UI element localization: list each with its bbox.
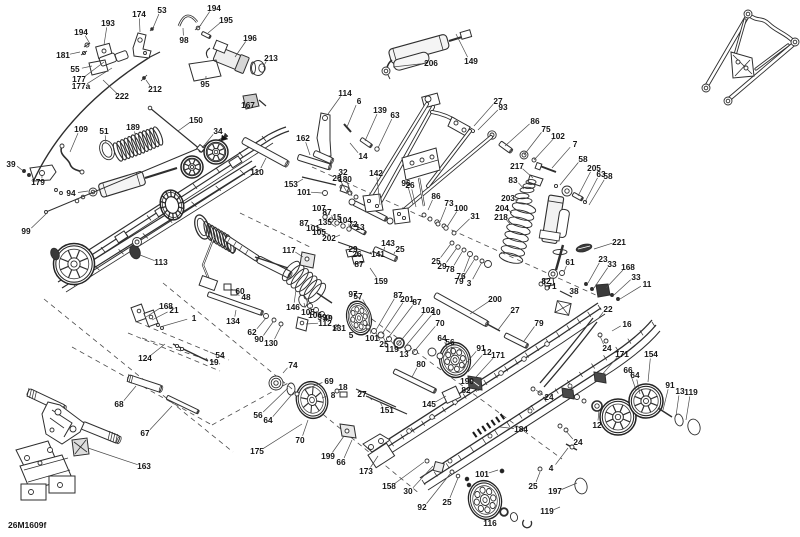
svg-text:116: 116 — [483, 518, 497, 528]
svg-text:24: 24 — [573, 437, 583, 447]
svg-text:193: 193 — [101, 18, 115, 28]
svg-text:222: 222 — [115, 91, 129, 101]
svg-text:180: 180 — [338, 174, 352, 184]
svg-text:30: 30 — [403, 486, 413, 496]
svg-text:58: 58 — [603, 171, 613, 181]
svg-text:61: 61 — [565, 257, 575, 267]
svg-text:26M1609f: 26M1609f — [8, 520, 46, 530]
svg-text:48: 48 — [241, 292, 251, 302]
svg-text:33: 33 — [607, 259, 617, 269]
svg-text:79: 79 — [534, 318, 544, 328]
svg-text:27: 27 — [357, 389, 367, 399]
svg-text:145: 145 — [422, 399, 436, 409]
svg-text:146: 146 — [286, 302, 300, 312]
svg-text:87: 87 — [354, 259, 364, 269]
svg-text:221: 221 — [612, 237, 626, 247]
svg-text:158: 158 — [382, 481, 396, 491]
svg-text:56: 56 — [445, 337, 455, 347]
svg-text:82: 82 — [461, 385, 471, 395]
svg-text:80: 80 — [416, 359, 426, 369]
svg-text:3: 3 — [467, 278, 472, 288]
svg-text:14: 14 — [358, 151, 368, 161]
svg-text:16: 16 — [622, 319, 632, 329]
svg-text:92: 92 — [417, 502, 427, 512]
svg-text:26: 26 — [352, 249, 362, 259]
svg-text:22: 22 — [603, 304, 613, 314]
svg-text:69: 69 — [324, 376, 334, 386]
svg-text:7: 7 — [573, 139, 578, 149]
svg-text:101: 101 — [297, 187, 311, 197]
svg-text:55: 55 — [70, 64, 80, 74]
svg-text:73: 73 — [444, 198, 454, 208]
svg-text:75: 75 — [541, 124, 551, 134]
svg-text:174: 174 — [132, 9, 146, 19]
svg-text:159: 159 — [374, 276, 388, 286]
svg-text:12: 12 — [592, 420, 602, 430]
svg-text:98: 98 — [179, 35, 189, 45]
svg-text:142: 142 — [369, 168, 383, 178]
svg-text:57: 57 — [353, 291, 363, 301]
svg-text:34: 34 — [213, 126, 223, 136]
svg-text:95: 95 — [200, 79, 210, 89]
svg-text:51: 51 — [99, 126, 109, 136]
svg-text:117: 117 — [282, 245, 296, 255]
svg-text:71: 71 — [547, 281, 557, 291]
svg-text:177a: 177a — [72, 81, 91, 91]
svg-text:64: 64 — [263, 415, 273, 425]
svg-text:8: 8 — [331, 390, 336, 400]
svg-text:134: 134 — [226, 316, 240, 326]
svg-text:24: 24 — [544, 392, 554, 402]
svg-text:167: 167 — [241, 100, 255, 110]
svg-text:24: 24 — [602, 343, 612, 353]
svg-text:184: 184 — [514, 424, 528, 434]
svg-text:99: 99 — [21, 226, 31, 236]
svg-text:130: 130 — [264, 338, 278, 348]
svg-text:78: 78 — [445, 264, 455, 274]
svg-text:181: 181 — [56, 50, 70, 60]
svg-text:197: 197 — [548, 486, 562, 496]
svg-text:171: 171 — [615, 349, 629, 359]
svg-text:11: 11 — [643, 279, 652, 289]
svg-text:19: 19 — [209, 357, 219, 367]
svg-text:110: 110 — [250, 167, 264, 177]
svg-text:124: 124 — [138, 353, 152, 363]
svg-text:6: 6 — [357, 96, 362, 106]
svg-text:171: 171 — [491, 350, 505, 360]
svg-text:114: 114 — [338, 88, 352, 98]
svg-text:91: 91 — [665, 380, 675, 390]
svg-text:100: 100 — [454, 203, 468, 213]
svg-text:86: 86 — [431, 191, 441, 201]
svg-text:31: 31 — [470, 211, 480, 221]
svg-text:68: 68 — [114, 399, 124, 409]
svg-text:179: 179 — [31, 177, 45, 187]
svg-text:203: 203 — [501, 193, 515, 203]
svg-text:53: 53 — [157, 5, 167, 15]
svg-text:25: 25 — [528, 481, 538, 491]
svg-text:119: 119 — [540, 506, 554, 516]
svg-text:1: 1 — [192, 313, 197, 323]
svg-text:168: 168 — [621, 262, 635, 272]
svg-text:94: 94 — [66, 188, 76, 198]
svg-text:199: 199 — [321, 451, 335, 461]
svg-text:101: 101 — [475, 469, 489, 479]
svg-text:70: 70 — [295, 435, 305, 445]
svg-text:93: 93 — [498, 102, 508, 112]
svg-text:141: 141 — [371, 249, 385, 259]
svg-text:4: 4 — [549, 463, 554, 473]
svg-text:113: 113 — [154, 257, 168, 267]
svg-text:218: 218 — [494, 212, 508, 222]
svg-text:67: 67 — [140, 428, 150, 438]
svg-text:217: 217 — [510, 161, 524, 171]
svg-text:109: 109 — [74, 124, 88, 134]
svg-text:194: 194 — [74, 27, 88, 37]
svg-text:206: 206 — [424, 58, 438, 68]
svg-text:163: 163 — [137, 461, 151, 471]
svg-text:112: 112 — [318, 318, 332, 328]
svg-text:196: 196 — [243, 33, 257, 43]
svg-text:162: 162 — [296, 133, 310, 143]
svg-text:151: 151 — [380, 405, 394, 415]
svg-text:25: 25 — [395, 244, 405, 254]
svg-text:10: 10 — [431, 307, 441, 317]
svg-text:87: 87 — [322, 207, 332, 217]
svg-text:79: 79 — [454, 276, 464, 286]
svg-text:202: 202 — [322, 233, 336, 243]
svg-text:63: 63 — [390, 110, 400, 120]
svg-text:74: 74 — [288, 360, 298, 370]
svg-text:154: 154 — [644, 349, 658, 359]
svg-text:26: 26 — [405, 180, 415, 190]
svg-text:21: 21 — [169, 305, 179, 315]
svg-text:135: 135 — [318, 217, 332, 227]
svg-text:38: 38 — [569, 286, 579, 296]
svg-text:90: 90 — [254, 334, 264, 344]
svg-text:101: 101 — [365, 333, 379, 343]
svg-text:5: 5 — [349, 330, 354, 340]
svg-text:175: 175 — [250, 446, 264, 456]
svg-text:143: 143 — [381, 238, 395, 248]
svg-text:13: 13 — [355, 222, 365, 232]
svg-text:200: 200 — [488, 294, 502, 304]
svg-text:70: 70 — [435, 318, 445, 328]
svg-text:86: 86 — [530, 116, 540, 126]
svg-text:195: 195 — [219, 15, 233, 25]
svg-text:150: 150 — [189, 115, 203, 125]
svg-text:131: 131 — [332, 323, 346, 333]
svg-text:173: 173 — [359, 466, 373, 476]
svg-text:213: 213 — [264, 53, 278, 63]
svg-text:33: 33 — [631, 272, 641, 282]
svg-text:119: 119 — [385, 344, 399, 354]
svg-text:212: 212 — [148, 84, 162, 94]
svg-text:66: 66 — [336, 457, 346, 467]
svg-text:119: 119 — [684, 387, 698, 397]
svg-text:189: 189 — [126, 122, 140, 132]
svg-text:56: 56 — [253, 410, 263, 420]
svg-text:83: 83 — [508, 175, 518, 185]
svg-text:149: 149 — [464, 56, 478, 66]
svg-text:64: 64 — [630, 370, 640, 380]
svg-text:194: 194 — [207, 3, 221, 13]
svg-text:18: 18 — [338, 382, 348, 392]
svg-text:27: 27 — [510, 305, 520, 315]
svg-text:102: 102 — [551, 131, 565, 141]
svg-text:139: 139 — [373, 105, 387, 115]
svg-text:39: 39 — [6, 159, 16, 169]
svg-text:13: 13 — [399, 349, 409, 359]
svg-text:25: 25 — [442, 497, 452, 507]
